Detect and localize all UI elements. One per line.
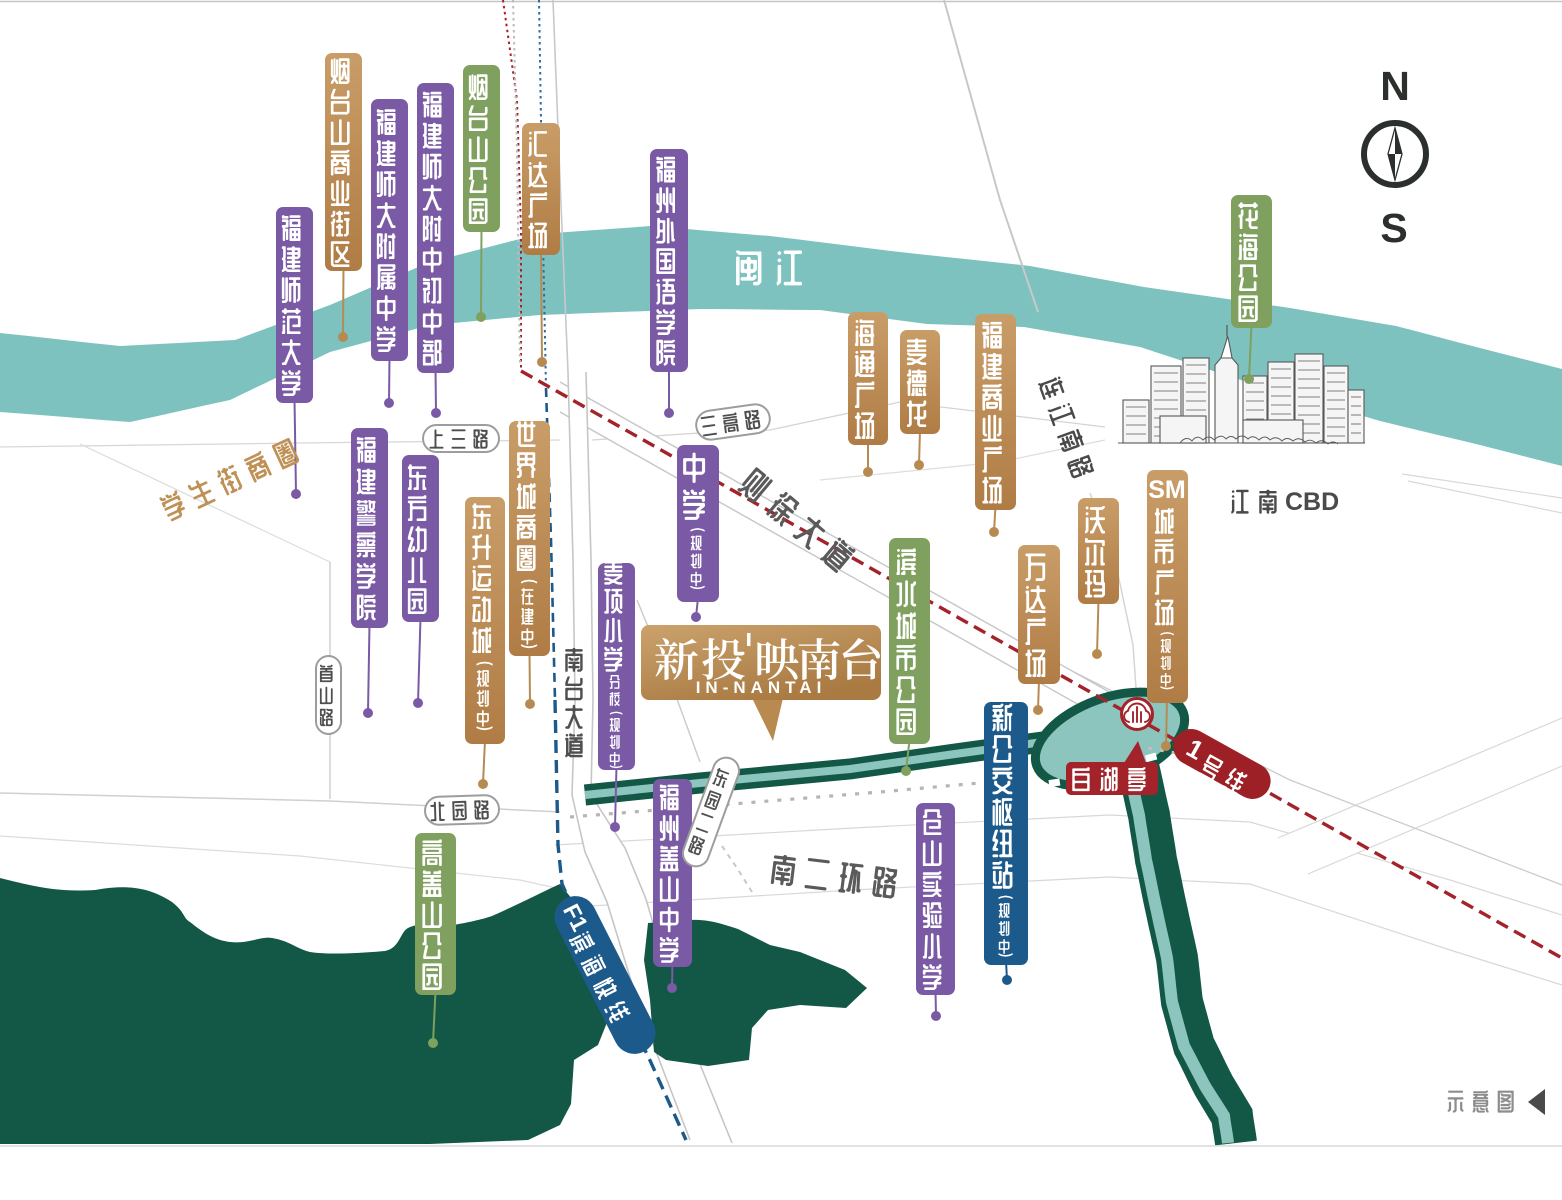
svg-text:IN-NANTAI: IN-NANTAI [696, 678, 827, 697]
svg-text:SM: SM [1148, 476, 1186, 504]
svg-text:S: S [1380, 205, 1407, 251]
svg-text:CBD: CBD [1285, 488, 1339, 516]
svg-text:N: N [1380, 63, 1410, 109]
